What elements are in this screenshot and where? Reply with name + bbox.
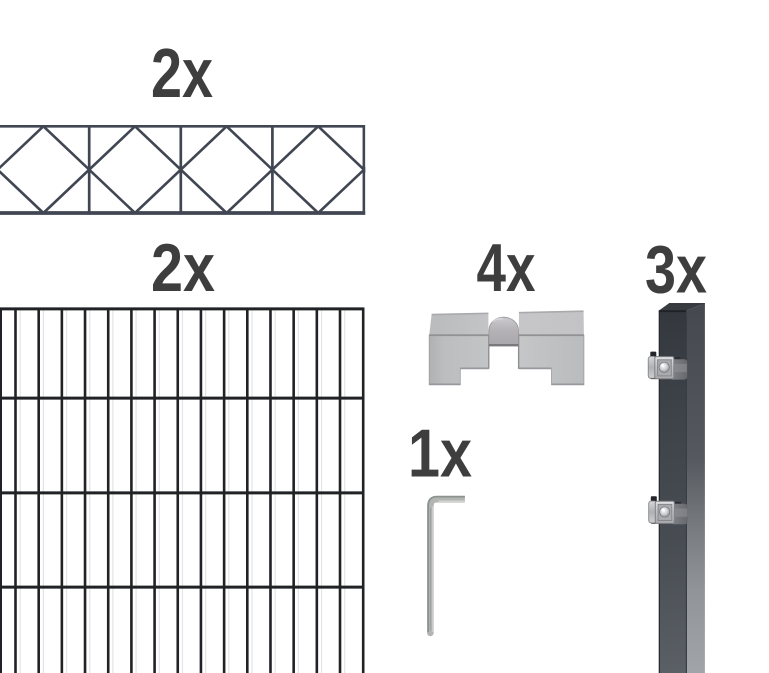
svg-text:4x: 4x <box>477 230 536 306</box>
svg-text:2x: 2x <box>151 230 215 306</box>
svg-text:1x: 1x <box>408 416 472 492</box>
svg-text:3x: 3x <box>645 232 707 308</box>
svg-text:2x: 2x <box>151 34 213 112</box>
